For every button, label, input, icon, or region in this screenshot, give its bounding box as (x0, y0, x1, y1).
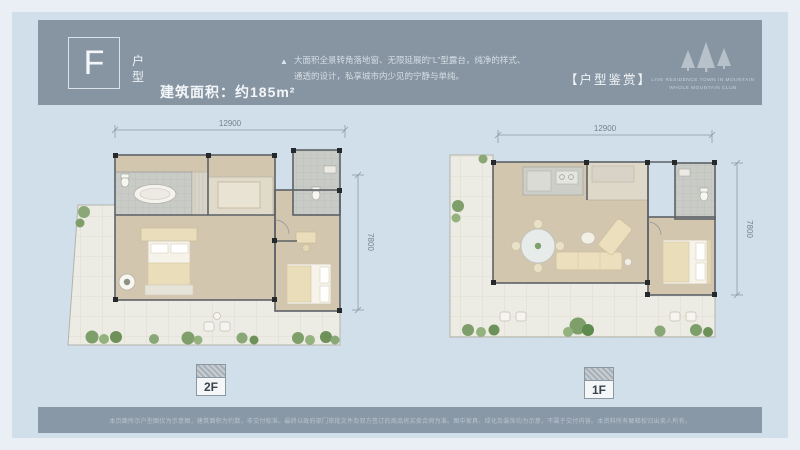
desk-chair (303, 245, 310, 252)
unit-letter: F (84, 44, 105, 83)
disclaimer-text: 本页面所示户型图仅为示意图，建筑面积为约数，非交付标准。最终以政府部门审批文件及… (109, 415, 691, 424)
triangle-bullet-icon: ▲ (280, 54, 288, 70)
dimension-right (731, 160, 743, 298)
description-block: ▲ 大面积全景转角落地窗、无限延展的“L”型露台，纯净的样式、 通透的设计，私享… (294, 52, 584, 84)
unit-letter-box: F (68, 37, 120, 89)
unit-type-char-top: 户 (132, 53, 145, 69)
bedroom-desk (296, 232, 316, 243)
floor-tag-hatch (196, 364, 226, 377)
washer-icon (119, 274, 135, 290)
area-label: 建筑面积：约185m² (160, 82, 295, 102)
closet-cabinet (218, 182, 260, 208)
floor-tag-label: 2F (196, 377, 226, 396)
logo-tagline-line1: LIVE RESIDENCE TOWN IN MOUNTAIN (651, 77, 755, 83)
floor-tag-2f: 2F (196, 364, 226, 396)
bathroom-second (293, 150, 340, 215)
second-bed (287, 264, 331, 304)
floor-plan-1f: 12900 7800 (438, 116, 760, 402)
brand-logo: LIVE RESIDENCE TOWN IN MOUNTAIN WHOLE MO… (638, 38, 768, 93)
floor-tag-label: 1F (584, 380, 614, 399)
footer-band: 本页面所示户型图仅为示意图，建筑面积为约数，非交付标准。最终以政府部门审批文件及… (38, 407, 762, 433)
dimension-top-label: 12900 (594, 124, 617, 133)
dimension-right (352, 172, 364, 313)
toilet-master-icon (121, 174, 129, 187)
master-bed (141, 228, 197, 295)
unit-type-char-bottom: 型 (132, 69, 145, 85)
dimension-right-label: 7800 (366, 233, 375, 251)
pine-trees-icon (638, 38, 768, 72)
floor-tag-1f: 1F (584, 367, 614, 399)
floor-plan-2f: 12900 7800 (58, 116, 380, 402)
header-band: F 户 型 建筑面积：约185m² ▲ 大面积全景转角落地窗、无限延展的“L”型… (38, 20, 762, 105)
foyer-cabinet (592, 166, 634, 182)
description-line-2: 通透的设计，私享城市内少见的宁静与单纯。 (294, 68, 584, 84)
description-line-1: 大面积全景转角落地窗、无限延展的“L”型露台，纯净的样式、 (294, 52, 584, 68)
unit-type-label: 户 型 (132, 53, 145, 85)
bed-1f (663, 240, 711, 284)
floor-tag-hatch (584, 367, 614, 380)
wardrobe (192, 172, 208, 215)
logo-tagline-line2: WHOLE MOUNTAIN CLUB (651, 85, 755, 91)
dimension-top-label: 12900 (219, 119, 242, 128)
brochure-page: F 户 型 建筑面积：约185m² ▲ 大面积全景转角落地窗、无限延展的“L”型… (0, 0, 800, 450)
dimension-right-label: 7800 (745, 220, 754, 238)
kitchen (523, 167, 583, 195)
bathtub (134, 185, 176, 204)
